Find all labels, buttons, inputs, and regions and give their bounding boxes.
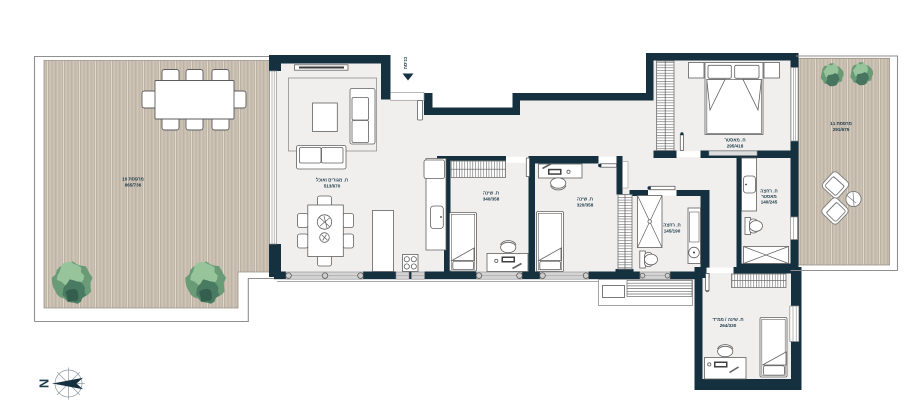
svg-text:340/358: 340/358 — [483, 197, 500, 202]
svg-text:513/670: 513/670 — [324, 184, 341, 189]
svg-text:ח. רחצה: ח. רחצה — [663, 223, 680, 228]
svg-text:145/190: 145/190 — [664, 229, 681, 234]
svg-text:מאסטר: מאסטר — [761, 194, 776, 199]
svg-text:ח. רחצה: ח. רחצה — [760, 189, 777, 194]
svg-text:N: N — [37, 379, 52, 388]
svg-text:ח. שינה: ח. שינה — [483, 191, 499, 196]
svg-text:291/675: 291/675 — [833, 127, 850, 132]
svg-text:140/245: 140/245 — [761, 200, 778, 205]
svg-text:320/358: 320/358 — [577, 203, 594, 208]
svg-text:865/736: 865/736 — [125, 183, 142, 188]
svg-text:ח. שינה: ח. שינה — [577, 197, 593, 202]
svg-text:מרפסת 10: מרפסת 10 — [122, 177, 144, 182]
svg-text:ח. שינה / ממ"ד: ח. שינה / ממ"ד — [712, 317, 743, 322]
svg-text:295/418: 295/418 — [727, 144, 744, 149]
svg-text:264/330: 264/330 — [720, 323, 737, 328]
svg-text:ח. מאסטר: ח. מאסטר — [724, 138, 745, 143]
svg-text:מרפסת 11: מרפסת 11 — [830, 121, 852, 126]
svg-text:כניסה: כניסה — [404, 56, 409, 69]
svg-text:ח. מגורים ואוכל: ח. מגורים ואוכל — [316, 178, 348, 183]
